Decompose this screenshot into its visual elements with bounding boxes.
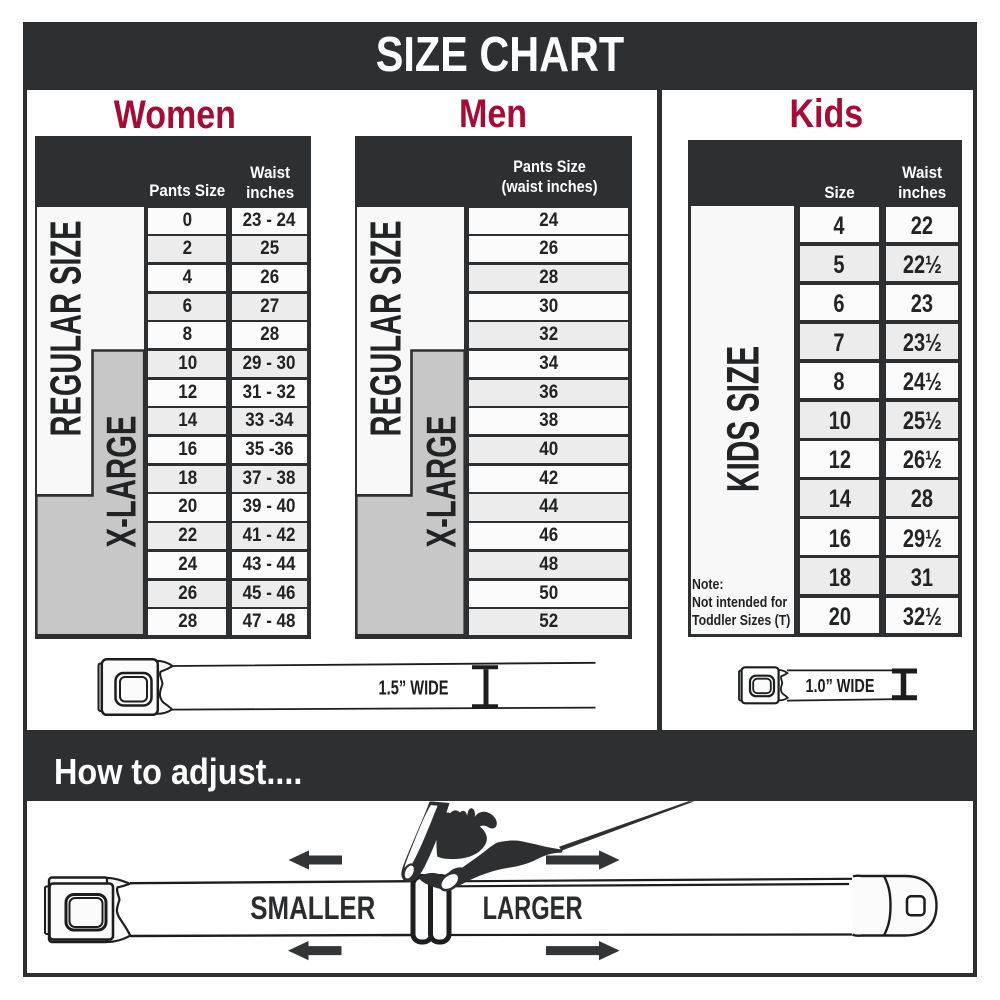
svg-text:1.5” WIDE: 1.5” WIDE — [379, 677, 449, 700]
svg-text:SMALLER: SMALLER — [250, 890, 375, 926]
svg-text:1.0” WIDE: 1.0” WIDE — [806, 675, 875, 696]
svg-text:LARGER: LARGER — [483, 890, 583, 926]
